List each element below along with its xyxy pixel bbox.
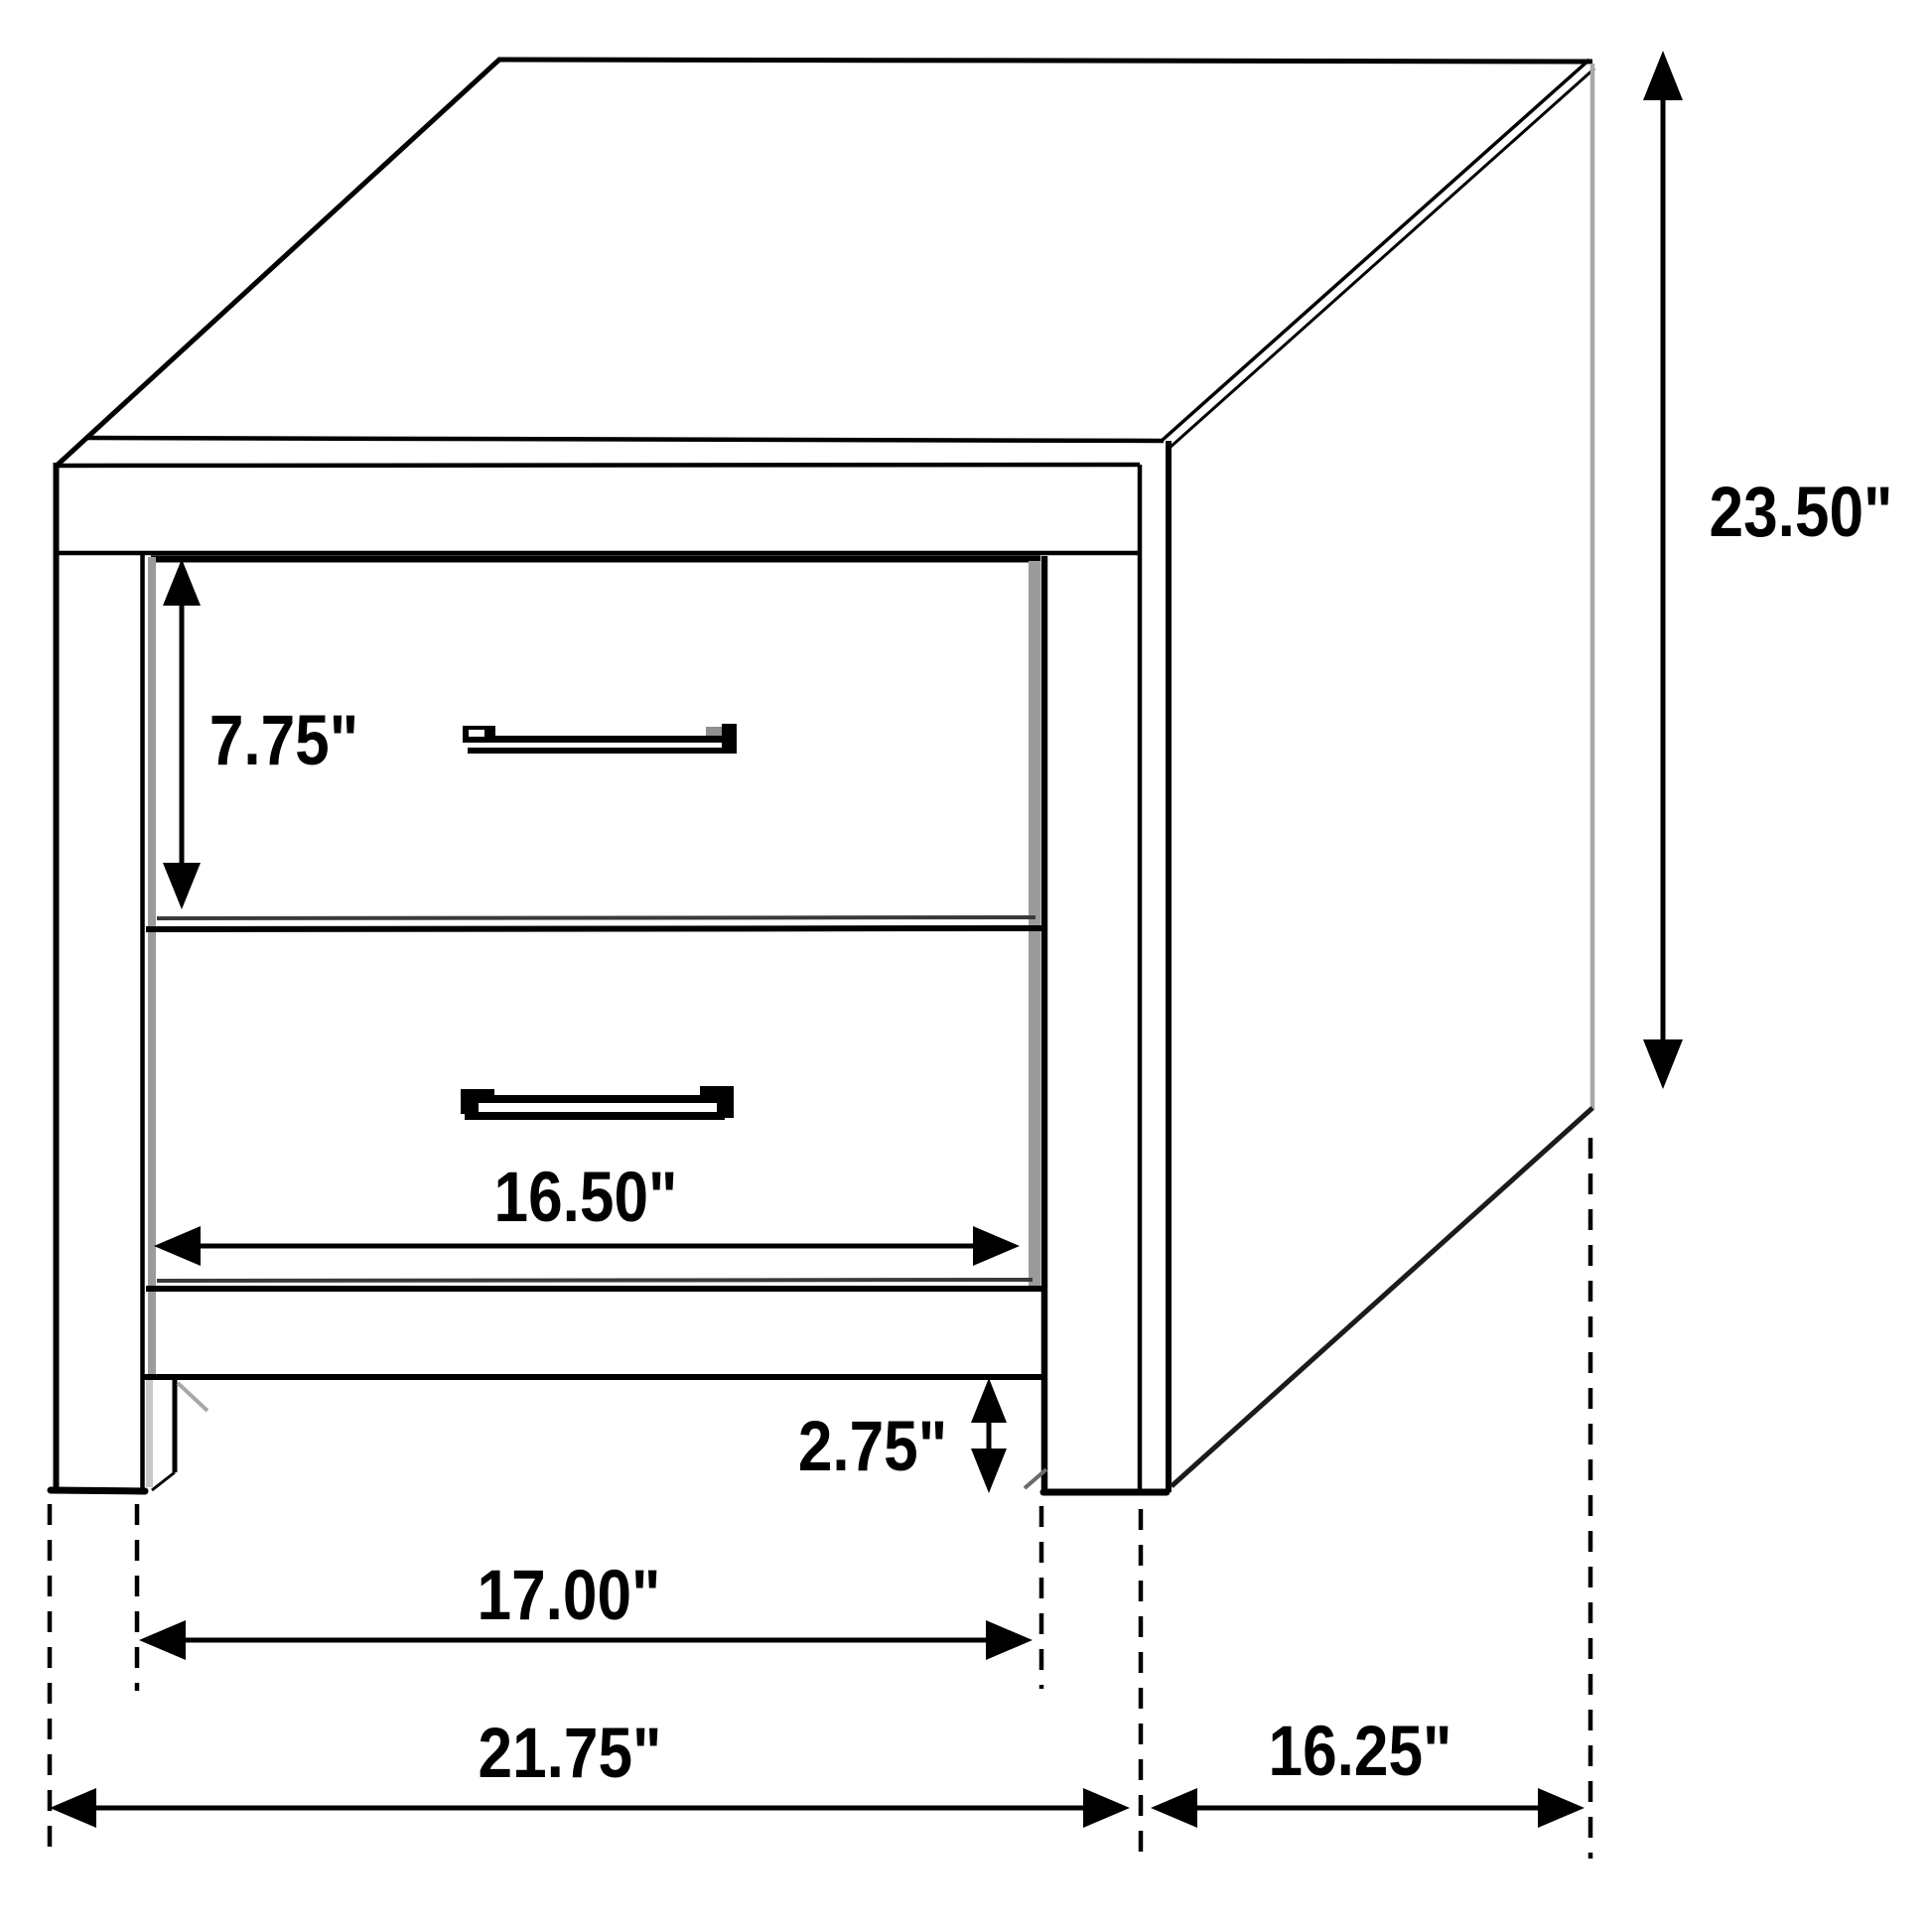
svg-text:21.75": 21.75" bbox=[479, 1715, 662, 1793]
svg-text:16.25": 16.25" bbox=[1269, 1713, 1452, 1791]
svg-text:17.00": 17.00" bbox=[478, 1557, 661, 1635]
svg-text:23.50": 23.50" bbox=[1710, 474, 1893, 552]
svg-text:7.75": 7.75" bbox=[209, 702, 358, 780]
svg-text:16.50": 16.50" bbox=[494, 1159, 678, 1237]
svg-text:2.75": 2.75" bbox=[798, 1408, 947, 1486]
